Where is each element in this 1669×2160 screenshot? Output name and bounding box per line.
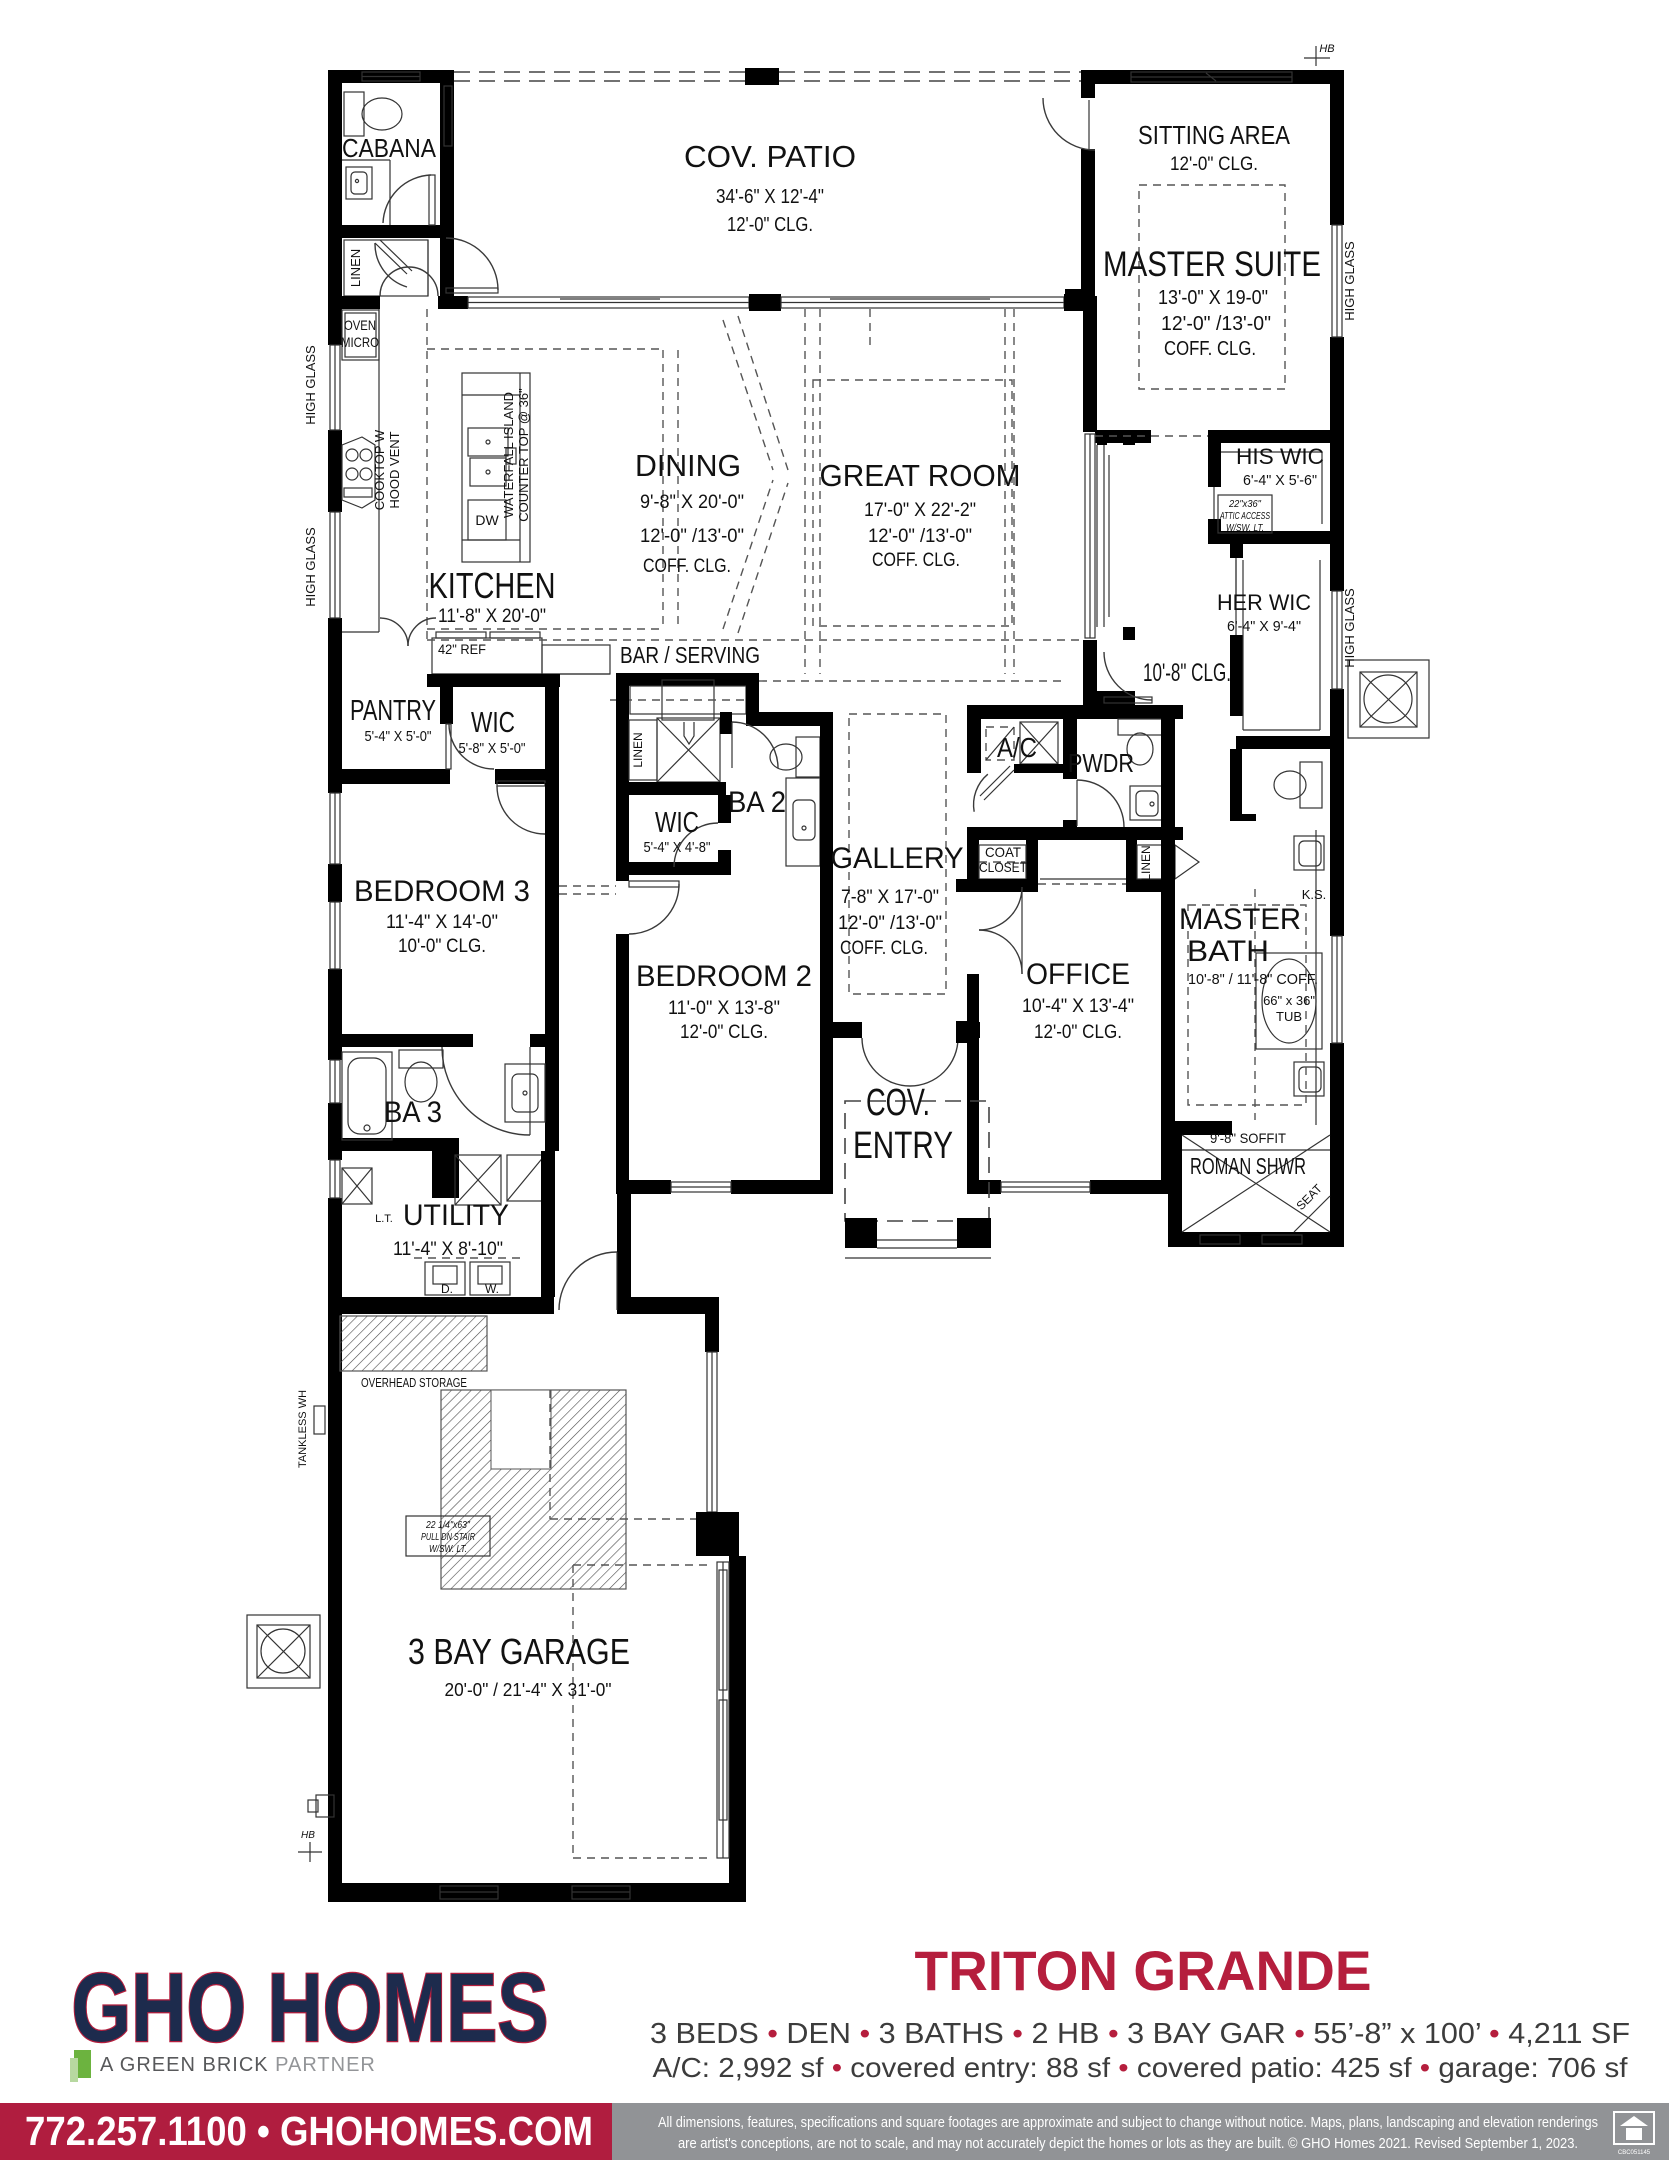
svg-text:CABANA: CABANA [342, 133, 437, 163]
svg-text:COFF. CLG.: COFF. CLG. [1164, 338, 1256, 360]
svg-text:BA 2: BA 2 [728, 786, 786, 819]
svg-text:W/SW. LT.: W/SW. LT. [1226, 523, 1264, 534]
svg-text:ATTIC ACCESS: ATTIC ACCESS [1219, 511, 1270, 522]
svg-text:22 1/4"x63": 22 1/4"x63" [425, 1520, 470, 1531]
svg-text:5'-4" X 4'-8": 5'-4" X 4'-8" [644, 839, 711, 856]
svg-text:12'-0" CLG.: 12'-0" CLG. [1034, 1022, 1122, 1043]
svg-text:BEDROOM 2: BEDROOM 2 [636, 960, 812, 993]
svg-text:A GREEN BRICK PARTNER: A GREEN BRICK PARTNER [100, 2054, 376, 2076]
svg-text:12'-0" /13'-0": 12'-0" /13'-0" [868, 526, 972, 547]
svg-text:11'-4" X 8'-10": 11'-4" X 8'-10" [393, 1239, 503, 1260]
svg-text:12'-0" /13'-0": 12'-0" /13'-0" [640, 526, 744, 547]
svg-text:L.T.: L.T. [375, 1213, 393, 1225]
svg-text:COUNTER TOP @ 36": COUNTER TOP @ 36" [516, 388, 531, 522]
svg-text:A/C: A/C [997, 732, 1037, 763]
svg-text:A/C: 2,992 sf • covered entry:: A/C: 2,992 sf • covered entry: 88 sf • c… [653, 2052, 1628, 2083]
svg-text:OVERHEAD STORAGE: OVERHEAD STORAGE [361, 1375, 467, 1390]
svg-text:LINEN: LINEN [1139, 845, 1153, 880]
svg-text:HIGH GLASS: HIGH GLASS [1342, 241, 1357, 321]
svg-text:11'-4" X 14'-0": 11'-4" X 14'-0" [386, 912, 498, 933]
svg-text:13'-0" X 19-0": 13'-0" X 19-0" [1158, 287, 1268, 309]
svg-text:3 BEDS • DEN • 3 BATHS • 2 HB: 3 BEDS • DEN • 3 BATHS • 2 HB • 3 BAY GA… [650, 2018, 1630, 2050]
svg-text:are artist's conceptions, are: are artist's conceptions, are not to sca… [678, 2135, 1578, 2152]
svg-text:11'-0" X 13'-8": 11'-0" X 13'-8" [668, 998, 780, 1019]
svg-text:20'-0" / 21'-4" X 31'-0": 20'-0" / 21'-4" X 31'-0" [445, 1680, 612, 1700]
svg-text:HIGH GLASS: HIGH GLASS [1342, 588, 1357, 668]
svg-text:ROMAN SHWR: ROMAN SHWR [1190, 1153, 1306, 1179]
svg-text:K.S.: K.S. [1302, 887, 1327, 902]
svg-text:COFF. CLG.: COFF. CLG. [872, 550, 960, 571]
svg-text:KITCHEN: KITCHEN [429, 565, 556, 606]
svg-text:7-8" X 17'-0": 7-8" X 17'-0" [841, 887, 939, 908]
svg-text:12'-0" CLG.: 12'-0" CLG. [727, 214, 813, 236]
svg-text:12'-0" CLG.: 12'-0" CLG. [1170, 154, 1258, 175]
svg-text:BATH: BATH [1187, 935, 1269, 968]
svg-text:All dimensions, features, spec: All dimensions, features, specifications… [658, 2114, 1598, 2131]
svg-text:MASTER SUITE: MASTER SUITE [1103, 245, 1321, 284]
svg-text:PULL DN STAIR: PULL DN STAIR [421, 1532, 475, 1543]
svg-text:CLOSET: CLOSET [979, 859, 1027, 875]
svg-text:5'-8" X 5'-0": 5'-8" X 5'-0" [459, 740, 526, 757]
svg-text:GREAT ROOM: GREAT ROOM [820, 458, 1021, 493]
svg-text:GHO HOMES: GHO HOMES [72, 1953, 549, 2062]
svg-text:W.: W. [485, 1282, 499, 1296]
svg-text:BAR / SERVING: BAR / SERVING [620, 642, 760, 668]
svg-text:MICRO: MICRO [341, 334, 379, 350]
svg-text:10'-4" X 13'-4": 10'-4" X 13'-4" [1022, 996, 1134, 1017]
svg-text:W/SW. LT.: W/SW. LT. [429, 1544, 467, 1555]
svg-text:COFF. CLG.: COFF. CLG. [643, 556, 731, 577]
svg-text:LINEN: LINEN [631, 732, 645, 767]
svg-text:9'-8" SOFFIT: 9'-8" SOFFIT [1210, 1130, 1286, 1146]
svg-text:COV.: COV. [866, 1082, 930, 1124]
svg-text:12'-0" CLG.: 12'-0" CLG. [680, 1022, 768, 1043]
svg-text:MASTER: MASTER [1179, 903, 1301, 936]
svg-text:12'-0" /13'-0": 12'-0" /13'-0" [838, 913, 942, 934]
svg-text:11'-8" X 20'-0": 11'-8" X 20'-0" [438, 606, 546, 627]
svg-text:COV. PATIO: COV. PATIO [684, 139, 856, 174]
svg-text:COFF. CLG.: COFF. CLG. [840, 938, 928, 959]
svg-text:CBC051145: CBC051145 [1618, 2150, 1651, 2156]
svg-text:10'-8" / 11'-8" COFF.: 10'-8" / 11'-8" COFF. [1188, 971, 1318, 988]
svg-text:3 BAY GARAGE: 3 BAY GARAGE [408, 1631, 630, 1672]
svg-text:6'-4" X 9'-4": 6'-4" X 9'-4" [1227, 618, 1301, 635]
svg-text:PWDR: PWDR [1068, 748, 1134, 778]
svg-text:DINING: DINING [635, 448, 741, 483]
svg-text:HB: HB [301, 1830, 315, 1841]
svg-text:WIC: WIC [655, 807, 699, 839]
svg-text:BA 3: BA 3 [384, 1096, 442, 1129]
svg-text:WIC: WIC [471, 707, 515, 739]
svg-text:6'-4" X 5'-6": 6'-4" X 5'-6" [1243, 472, 1317, 489]
svg-text:5'-4" X 5'-0": 5'-4" X 5'-0" [365, 728, 432, 745]
svg-text:OVEN: OVEN [344, 317, 376, 333]
svg-text:17'-0" X 22'-2": 17'-0" X 22'-2" [864, 500, 976, 521]
svg-text:GALLERY: GALLERY [831, 842, 964, 875]
svg-text:ENTRY: ENTRY [853, 1125, 953, 1167]
svg-text:PANTRY: PANTRY [350, 695, 436, 727]
svg-text:HB: HB [1319, 43, 1334, 55]
svg-text:OFFICE: OFFICE [1026, 958, 1130, 991]
svg-text:TUB: TUB [1276, 1009, 1302, 1024]
svg-text:UTILITY: UTILITY [403, 1199, 509, 1232]
svg-text:42" REF: 42" REF [438, 641, 486, 657]
svg-text:HIGH GLASS: HIGH GLASS [303, 345, 318, 425]
svg-text:772.257.1100 • GHOHOMES.COM: 772.257.1100 • GHOHOMES.COM [25, 2108, 593, 2154]
svg-text:COOKTOP W: COOKTOP W [372, 429, 387, 510]
svg-text:HIGH GLASS: HIGH GLASS [303, 527, 318, 607]
svg-text:34'-6" X 12'-4": 34'-6" X 12'-4" [716, 186, 824, 208]
svg-text:9'-8" X 20'-0": 9'-8" X 20'-0" [640, 492, 744, 513]
svg-text:66" x 36": 66" x 36" [1263, 993, 1315, 1008]
svg-text:BEDROOM 3: BEDROOM 3 [354, 875, 530, 908]
svg-text:COAT: COAT [985, 844, 1021, 860]
svg-text:HER WIC: HER WIC [1217, 590, 1311, 615]
svg-text:SITTING AREA: SITTING AREA [1138, 120, 1291, 150]
svg-text:HOOD VENT: HOOD VENT [387, 431, 402, 508]
svg-text:12'-0" /13'-0": 12'-0" /13'-0" [1161, 313, 1271, 335]
svg-text:WATERFALL ISLAND: WATERFALL ISLAND [501, 392, 516, 518]
svg-text:D.: D. [441, 1282, 453, 1296]
svg-text:TANKLESS WH: TANKLESS WH [297, 1390, 309, 1468]
svg-text:LINEN: LINEN [348, 249, 363, 287]
svg-text:DW: DW [475, 512, 499, 528]
svg-text:TRITON GRANDE: TRITON GRANDE [915, 1939, 1372, 2002]
svg-text:10'-0" CLG.: 10'-0" CLG. [398, 936, 486, 957]
svg-text:HIS WIC: HIS WIC [1236, 444, 1324, 469]
svg-text:10'-8" CLG.: 10'-8" CLG. [1143, 659, 1231, 687]
svg-text:22"x36": 22"x36" [1228, 499, 1261, 510]
